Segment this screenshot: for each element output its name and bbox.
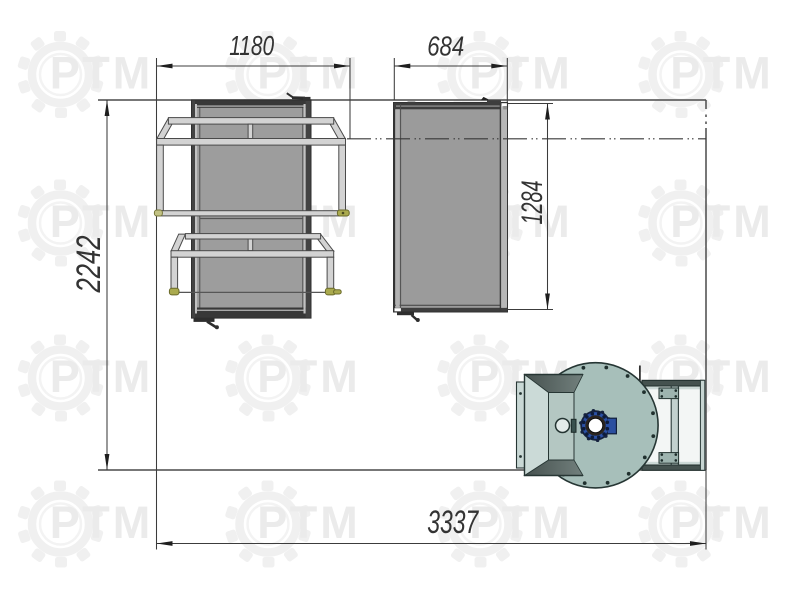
svg-text:1284: 1284 [516, 181, 549, 225]
svg-text:2242: 2242 [70, 235, 108, 293]
svg-text:3337: 3337 [427, 504, 479, 540]
svg-text:1180: 1180 [229, 30, 274, 61]
svg-text:684: 684 [427, 31, 464, 62]
